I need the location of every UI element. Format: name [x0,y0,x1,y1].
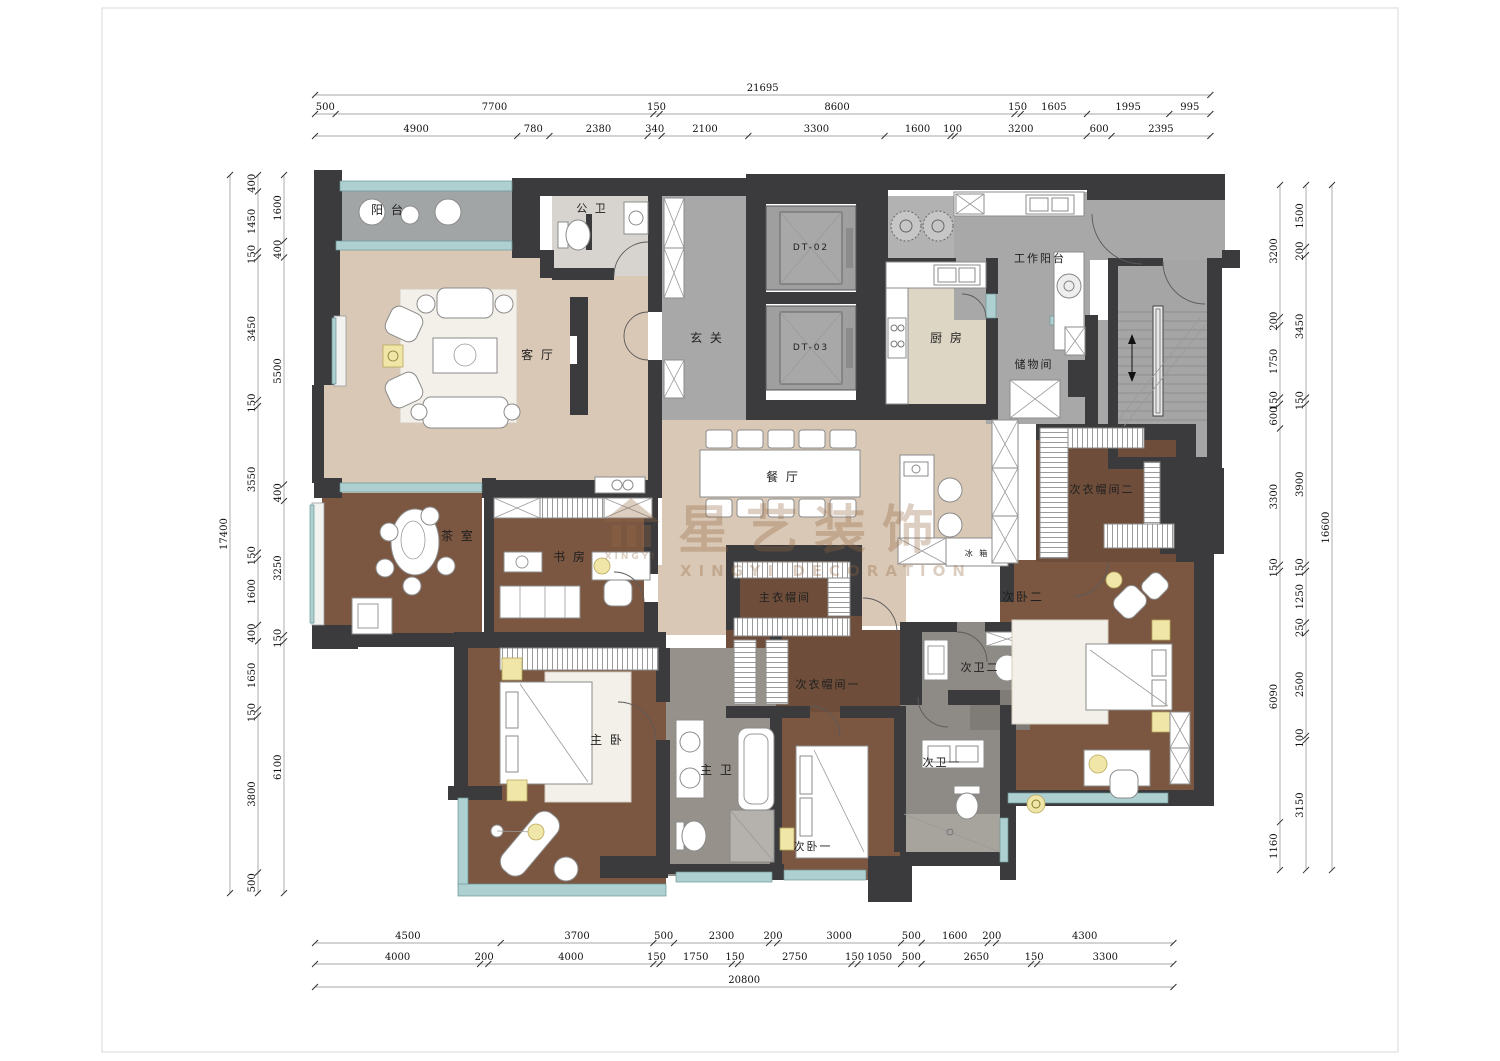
room-label-elevator-dt03: DT-03 [793,343,829,353]
floor-plan-drawing: XINGYI 星艺装饰 XINGYI DECORATION 阳 台公 卫玄 关客… [0,0,1500,1061]
dimension-label: 4300 [1072,931,1097,942]
plant-table [504,552,542,572]
dimension-label: 200 [1269,312,1280,331]
room-label-balcony: 阳 台 [371,202,405,217]
bath1-window [1000,818,1008,862]
room-label-kitchen: 厨 房 [930,330,964,345]
dimension-label: 100 [943,124,962,135]
bookshelf [500,586,580,618]
guest-toilet [566,220,590,250]
room-label-living-room: 客 厅 [521,347,555,362]
nightstand [1152,712,1170,732]
dimension-label: 4000 [385,952,410,963]
balcony-chair [435,199,461,225]
room-label-bedroom-2: 次卧二 [1002,590,1044,604]
side-table [417,295,435,313]
dimension-label: 150 [1008,102,1027,113]
dimension-label: 17400 [219,518,230,550]
dimension-label: 3450 [1295,314,1306,339]
side-table [495,295,513,313]
living-lamp [383,345,403,367]
dining-chair [830,430,856,448]
dimension-label: 150 [247,245,258,264]
dimension-label: 2380 [586,124,611,135]
bedroom2-chair [1110,770,1138,798]
dimension-label: 995 [1180,102,1199,113]
room-label-master-bedroom: 主 卧 [590,733,624,747]
dimension-label: 21695 [747,83,779,94]
ceiling-lamp [1106,572,1122,588]
balcony-living-window [336,241,512,250]
dimension-label: 150 [1295,391,1306,410]
dimension-label: 1600 [905,124,930,135]
dimension-label: 3900 [1295,471,1306,496]
dimension-label: 4500 [395,931,420,942]
desk-lamp [1089,755,1107,773]
dimension-label: 600 [1269,407,1280,426]
master-bay-window-bottom [458,884,666,896]
dimension-label: 2395 [1148,124,1173,135]
dimension-label: 1500 [1295,203,1306,228]
dimension-label: 2300 [709,931,734,942]
dimension-label: 1750 [683,952,708,963]
dimension-label: 7700 [482,102,507,113]
dimension-label: 1650 [247,663,258,688]
floor-lamp [1027,795,1045,813]
dimension-label: 1605 [1041,102,1066,113]
dining-chair [768,430,794,448]
dimension-label: 4000 [558,952,583,963]
dimension-label: 3300 [1093,952,1118,963]
master-toilet [682,821,706,851]
dimension-label: 3800 [247,781,258,806]
dimension-label: 3700 [564,931,589,942]
dining-chair [706,430,732,448]
bar-stool [938,478,962,502]
master-bay-window-left [458,798,468,886]
watermark-brand-en: XINGYI DECORATION [680,562,972,580]
dimension-label: 1250 [1295,584,1306,609]
dimension-label: 340 [645,124,664,135]
dimension-label: 500 [902,952,921,963]
dimension-label: 150 [1025,952,1044,963]
dimension-label: 3200 [1008,124,1033,135]
tea-stool [380,523,398,541]
dimension-label: 150 [845,952,864,963]
room-label-bath-2: 次卫二 [961,660,1000,674]
room-label-closet-2: 次衣帽间二 [1070,482,1135,496]
dimension-label: 150 [247,703,258,722]
dimension-label: 150 [247,546,258,565]
dimension-label: 3150 [1295,792,1306,817]
dimension-label: 500 [316,102,335,113]
dimension-label: 400 [273,240,284,259]
nightstand [502,658,522,680]
dimension-label: 1050 [867,952,892,963]
dimension-label: 1160 [1269,833,1280,858]
dimension-label: 3300 [1269,484,1280,509]
room-label-study: 书 房 [553,549,587,564]
room-label-fridge: 冰 箱 [965,548,990,558]
dimension-label: 3250 [273,555,284,580]
dimension-label: 2500 [1295,672,1306,697]
dimension-label: 500 [654,931,673,942]
room-label-bath-1: 次卫一 [923,755,962,769]
dimension-label: 2750 [782,952,807,963]
dimension-label: 500 [902,931,921,942]
dimension-label: 150 [1295,558,1306,577]
dimension-label: 1600 [247,579,258,604]
room-label-bedroom-1: 次卧一 [794,839,833,853]
dimension-label: 3450 [247,316,258,341]
dimension-label: 3200 [1269,238,1280,263]
dimension-label: 150 [647,952,666,963]
stair-rail [1153,306,1163,416]
washing-machine [1057,274,1081,298]
dimension-label: 1995 [1115,102,1140,113]
dimension-label: 3000 [826,931,851,942]
dimension-label: 5500 [273,358,284,383]
dimension-label: 6100 [273,754,284,779]
watermark-brand-cn: 星艺装饰 [678,501,950,561]
kitchen-window [986,294,996,318]
ac-fan [891,211,921,241]
bedroom1-window [784,870,866,880]
room-label-foyer: 玄 关 [690,330,724,345]
living-tea-window [340,483,482,492]
tea-stool [376,559,394,577]
dimension-label: 600 [1090,124,1109,135]
nightstand [780,828,794,850]
dimension-label: 1600 [942,931,967,942]
dimension-label: 780 [524,124,543,135]
dimension-label: 1750 [1269,349,1280,374]
dimension-label: 400 [247,624,258,643]
coffee-table [433,338,497,373]
nightstand [1152,620,1170,640]
dimension-label: 150 [273,629,284,648]
dimension-label: 16600 [1321,512,1332,544]
dimension-label: 500 [247,873,258,892]
dimension-label: 400 [247,174,258,193]
ac-fan [923,211,953,241]
floor-plan-sheet: XINGYI 星艺装饰 XINGYI DECORATION 阳 台公 卫玄 关客… [0,0,1500,1061]
tea-stool [421,507,439,525]
tea-stool [437,557,455,575]
dining-chair [799,430,825,448]
watermark-logo-text: XINGYI [605,552,658,562]
nightstand [507,780,527,801]
dimension-label: 8600 [824,102,849,113]
sofa-top [437,288,493,318]
dimension-label: 150 [647,102,666,113]
dimension-label: 150 [725,952,744,963]
study-chair [604,580,632,606]
sofa-bottom [423,397,508,428]
dimension-label: 400 [273,483,284,502]
master-bath-window [676,872,772,882]
room-label-elevator-dt02: DT-02 [793,243,829,253]
room-label-work-balcony: 工作阳台 [1014,251,1066,265]
dimension-label: 3550 [247,467,258,492]
dimension-label: 3300 [804,124,829,135]
room-label-master-bath: 主 卫 [700,763,734,777]
cooktop [888,318,906,358]
balcony-window [340,181,512,191]
room-label-storage: 储物间 [1015,357,1054,371]
dimension-label: 200 [1295,241,1306,260]
room-label-closet-1: 次衣帽间一 [796,677,861,691]
dimension-label: 1600 [273,195,284,220]
bath1-toilet [956,793,978,819]
bathtub [738,728,774,810]
room-label-tea-room: 茶 室 [441,528,475,543]
ottoman [554,857,578,881]
room-label-guest-bath: 公 卫 [576,202,608,215]
dimension-label: 100 [1295,728,1306,747]
dimension-label: 6090 [1269,684,1280,709]
room-label-dining-room: 餐 厅 [766,469,800,484]
dimension-label: 2650 [964,952,989,963]
tea-stool [403,577,421,595]
dimension-label: 150 [1269,558,1280,577]
room-label-master-closet: 主衣帽间 [759,590,811,604]
dimension-label: 1450 [247,209,258,234]
dimension-label: 20800 [728,975,760,986]
dimension-label: 4900 [403,124,428,135]
dining-chair [737,430,763,448]
dimension-label: 2100 [692,124,717,135]
dimension-label: 150 [247,393,258,412]
